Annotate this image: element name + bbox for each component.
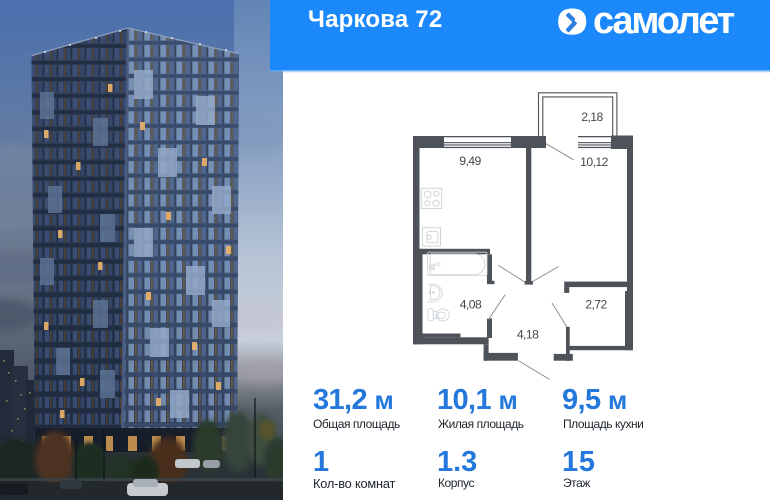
svg-text:2,18: 2,18 [581, 110, 603, 124]
svg-text:4,08: 4,08 [460, 297, 482, 311]
svg-text:10,12: 10,12 [580, 155, 609, 169]
svg-text:9,49: 9,49 [459, 154, 481, 168]
svg-text:4,18: 4,18 [517, 327, 539, 341]
svg-text:2,72: 2,72 [585, 298, 607, 312]
